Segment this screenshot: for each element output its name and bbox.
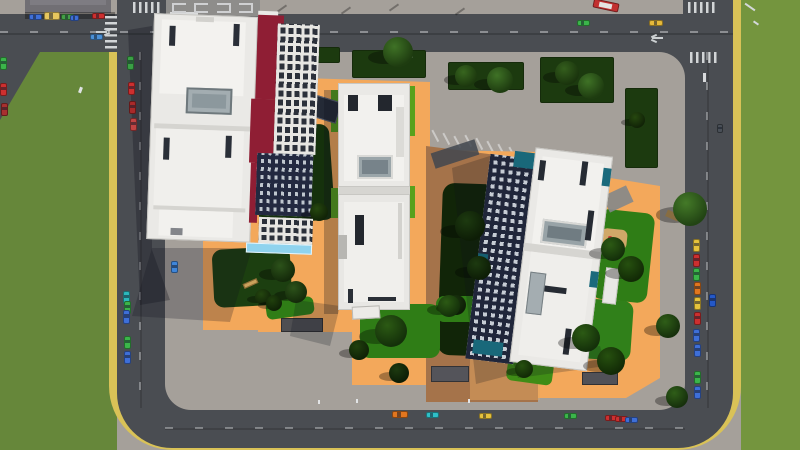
vehicle-van-green-leftroad-windshield — [128, 60, 133, 63]
lamp-speck-south-1 — [318, 400, 320, 404]
lb-roof-slot-4 — [225, 136, 232, 158]
tree-planter2 — [383, 37, 413, 67]
vehicle-car-green-top-windshield — [65, 15, 68, 19]
vehicle-car-red-bottom-1-windshield — [609, 416, 612, 420]
tree-park-d-1 — [601, 237, 625, 261]
tree-planter4-a — [555, 61, 579, 85]
vehicle-car-red-leftroad-2-windshield — [130, 105, 135, 108]
vehicle-car-red-westedge-1-windshield — [1, 87, 6, 90]
vehicle-car-green-topright-windshield — [581, 21, 584, 25]
tree-south-sidewalk — [389, 363, 409, 383]
lamp-speck-south-3 — [468, 399, 470, 403]
tree-east-sidewalk — [673, 192, 707, 226]
lamp-speck-south-2 — [356, 399, 358, 403]
vehicle-car-red-leftroad-1[interactable] — [128, 82, 135, 95]
mb-gray-walk — [338, 235, 347, 259]
tree-planter4-b — [578, 73, 604, 99]
tree-park-f — [266, 295, 282, 311]
vehicle-car-green-right-2-windshield — [695, 375, 700, 378]
vehicle-car-red-right-1-windshield — [694, 258, 699, 261]
vehicle-car-yellow-bottom-windshield — [483, 414, 486, 418]
tree-planter3-b — [487, 67, 513, 93]
mb-edge-strip-low — [398, 203, 402, 259]
vehicle-van-blue-leftroad-windshield — [124, 314, 129, 317]
lb-skylight-inner — [192, 94, 226, 109]
vehicle-car-green-westedge[interactable] — [0, 57, 7, 70]
crosswalk-east-road — [690, 52, 720, 63]
crosswalk-branch-topright — [688, 2, 718, 13]
vehicle-car-orange-right-windshield — [695, 286, 700, 289]
vehicle-car-blue-driveway-windshield — [172, 265, 177, 268]
vehicle-car-green-right-2[interactable] — [694, 371, 701, 384]
vehicle-car-blue-leftroad-windshield — [125, 355, 130, 358]
vehicle-car-red-leftroad-3-windshield — [131, 122, 136, 125]
vehicle-car-blue-right-1[interactable] — [693, 329, 700, 342]
vehicle-car-blue-right-1-windshield — [694, 333, 699, 336]
vehicle-car-blue-leftroad[interactable] — [124, 351, 131, 364]
vehicle-truck-orange-bottom[interactable] — [392, 411, 408, 418]
lb-lower-window-facade — [258, 217, 313, 245]
vehicle-car-cyan-bottom-windshield — [430, 413, 433, 417]
vehicle-car-yellow-bottom[interactable] — [479, 413, 492, 419]
mb-low-panel — [344, 202, 404, 302]
lane-dash-right — [706, 52, 708, 408]
street-lamp-east — [703, 73, 706, 82]
tree-park-h-2 — [597, 347, 625, 375]
vehicle-car-blue-right-3[interactable] — [694, 386, 701, 399]
vehicle-car-blue-bottom-windshield — [629, 418, 632, 422]
vehicle-car-red-top[interactable] — [92, 13, 105, 19]
tree-park-e-1 — [375, 315, 407, 347]
vehicle-car-green-leftroad-3-windshield — [125, 340, 130, 343]
grass-field-right — [741, 0, 800, 450]
vehicle-van-yellow-top-windshield — [49, 13, 53, 19]
vehicle-car-yellow-right-2-windshield — [695, 301, 700, 304]
vehicle-car-blue-right-2[interactable] — [694, 344, 701, 357]
vehicle-car-red-westedge-1[interactable] — [0, 83, 7, 96]
tree-park-b-1 — [271, 258, 295, 282]
vehicle-truck-orange-bottom-windshield — [397, 412, 401, 417]
vehicle-taxi-yellow-topright[interactable] — [649, 20, 663, 26]
vehicle-car-red-leftroad-1-windshield — [129, 86, 134, 89]
tree-planter5 — [629, 112, 645, 128]
vehicle-car-red-bottom-2-windshield — [619, 417, 622, 421]
mb-slot-2 — [378, 95, 392, 111]
lb-roof-slot-1 — [169, 26, 176, 46]
vehicle-car-green-westedge-windshield — [1, 61, 6, 64]
mb-low-slot-3 — [368, 297, 396, 301]
lb-ac-unit — [170, 228, 182, 235]
vehicle-car-yellow-right-1-windshield — [694, 243, 699, 246]
vehicle-car-cyan-bottom[interactable] — [426, 412, 439, 418]
vehicle-car-dark-right-top[interactable] — [717, 124, 723, 133]
utility-box-2 — [431, 366, 469, 382]
vehicle-car-blue-bottom[interactable] — [625, 417, 638, 423]
tree-right-building-lawn — [515, 360, 533, 378]
mb-slot-1 — [348, 95, 358, 111]
mb-low-slot — [355, 215, 364, 245]
vehicle-car-red-leftroad-3[interactable] — [130, 118, 137, 131]
vehicle-taxi-yellow-topright-windshield — [654, 21, 657, 25]
grass-field-left — [0, 52, 117, 450]
vehicle-car-blue-top-1[interactable] — [29, 14, 42, 20]
building-middle-residential[interactable] — [338, 83, 410, 310]
tree-park-d-2 — [618, 256, 644, 282]
lb-roof-slot-2 — [233, 24, 240, 46]
mb-edge-strip-top — [396, 107, 404, 157]
vehicle-car-red-right-1[interactable] — [693, 254, 700, 267]
vehicle-car-yellow-right-2[interactable] — [694, 297, 701, 310]
building-left-residential[interactable] — [142, 7, 326, 259]
vehicle-car-teal-leftroad-windshield — [124, 295, 129, 298]
vehicle-car-blue-top-2-windshield — [73, 16, 75, 20]
lb-navy-facade — [255, 153, 313, 217]
lane-dash-bottom — [165, 427, 685, 429]
lb-tower-window-facade — [273, 23, 320, 154]
tree-park-h-1 — [572, 324, 600, 352]
dirt-shoulder-right-top — [733, 0, 741, 46]
vehicle-car-blue-top-3-windshield — [94, 35, 97, 39]
vehicle-car-green-right-1-windshield — [694, 272, 699, 275]
vehicle-car-green-bottom[interactable] — [564, 413, 577, 419]
vehicle-car-orange-right[interactable] — [694, 282, 701, 295]
vehicle-car-blue-top-2[interactable] — [70, 15, 79, 21]
vehicle-car-green-leftroad-3[interactable] — [124, 336, 131, 349]
tree-park-a — [310, 203, 328, 221]
vehicle-car-green-leftroad-2-windshield — [125, 305, 130, 308]
tree-southeast-2 — [666, 386, 688, 408]
vehicle-car-blue-top-1-windshield — [33, 15, 36, 19]
tree-park-c-1 — [455, 211, 485, 241]
lb-roof-slot-3 — [163, 138, 170, 160]
vehicle-car-red-top-windshield — [96, 14, 99, 18]
vehicle-car-green-topright[interactable] — [577, 20, 590, 26]
game-viewport — [0, 0, 800, 450]
vehicle-van-yellow-top[interactable] — [44, 12, 60, 20]
tree-park-c-2 — [467, 256, 491, 280]
mb-skylight-inner — [362, 160, 388, 174]
vehicle-car-red-westedge-2[interactable] — [1, 103, 8, 116]
tree-park-g — [438, 295, 460, 317]
vehicle-car-red-right-2-windshield — [695, 316, 700, 319]
hedge-planter-5 — [625, 88, 658, 168]
vehicle-car-blue-driveway[interactable] — [171, 261, 178, 273]
vehicle-car-yellow-right-1[interactable] — [693, 239, 700, 252]
lb-roof-vent — [196, 17, 214, 23]
mid-building-entrance-canopy — [352, 305, 381, 319]
vehicle-car-green-right-1[interactable] — [693, 268, 700, 281]
vehicle-van-green-leftroad[interactable] — [127, 56, 134, 70]
tree-southeast-1 — [656, 314, 680, 338]
mb-joint — [338, 187, 410, 194]
vehicle-car-blue-right-3-windshield — [695, 390, 700, 393]
mb-low-slot-2 — [348, 289, 353, 303]
lb-blue-awning — [246, 242, 312, 254]
vehicle-car-red-westedge-2-windshield — [2, 107, 7, 110]
vehicle-car-red-right-2[interactable] — [694, 312, 701, 325]
tree-park-e-2 — [349, 340, 369, 360]
vehicle-car-red-leftroad-2[interactable] — [129, 101, 136, 114]
shadow-mid-building-west — [324, 90, 338, 314]
vehicle-car-blue-top-3[interactable] — [90, 34, 103, 40]
vehicle-car-dark-right-top-windshield — [718, 127, 722, 129]
rooftop-northwest-light-band — [30, 0, 106, 5]
vehicle-car-green-bottom-windshield — [568, 414, 571, 418]
vehicle-car-blue-driving-right-windshield — [710, 298, 715, 301]
vehicle-car-blue-right-2-windshield — [695, 348, 700, 351]
tree-park-b-2 — [285, 281, 307, 303]
vehicle-car-blue-driving-right[interactable] — [709, 294, 716, 307]
vehicle-van-blue-leftroad[interactable] — [123, 310, 130, 324]
road-arrow-east — [652, 37, 663, 39]
